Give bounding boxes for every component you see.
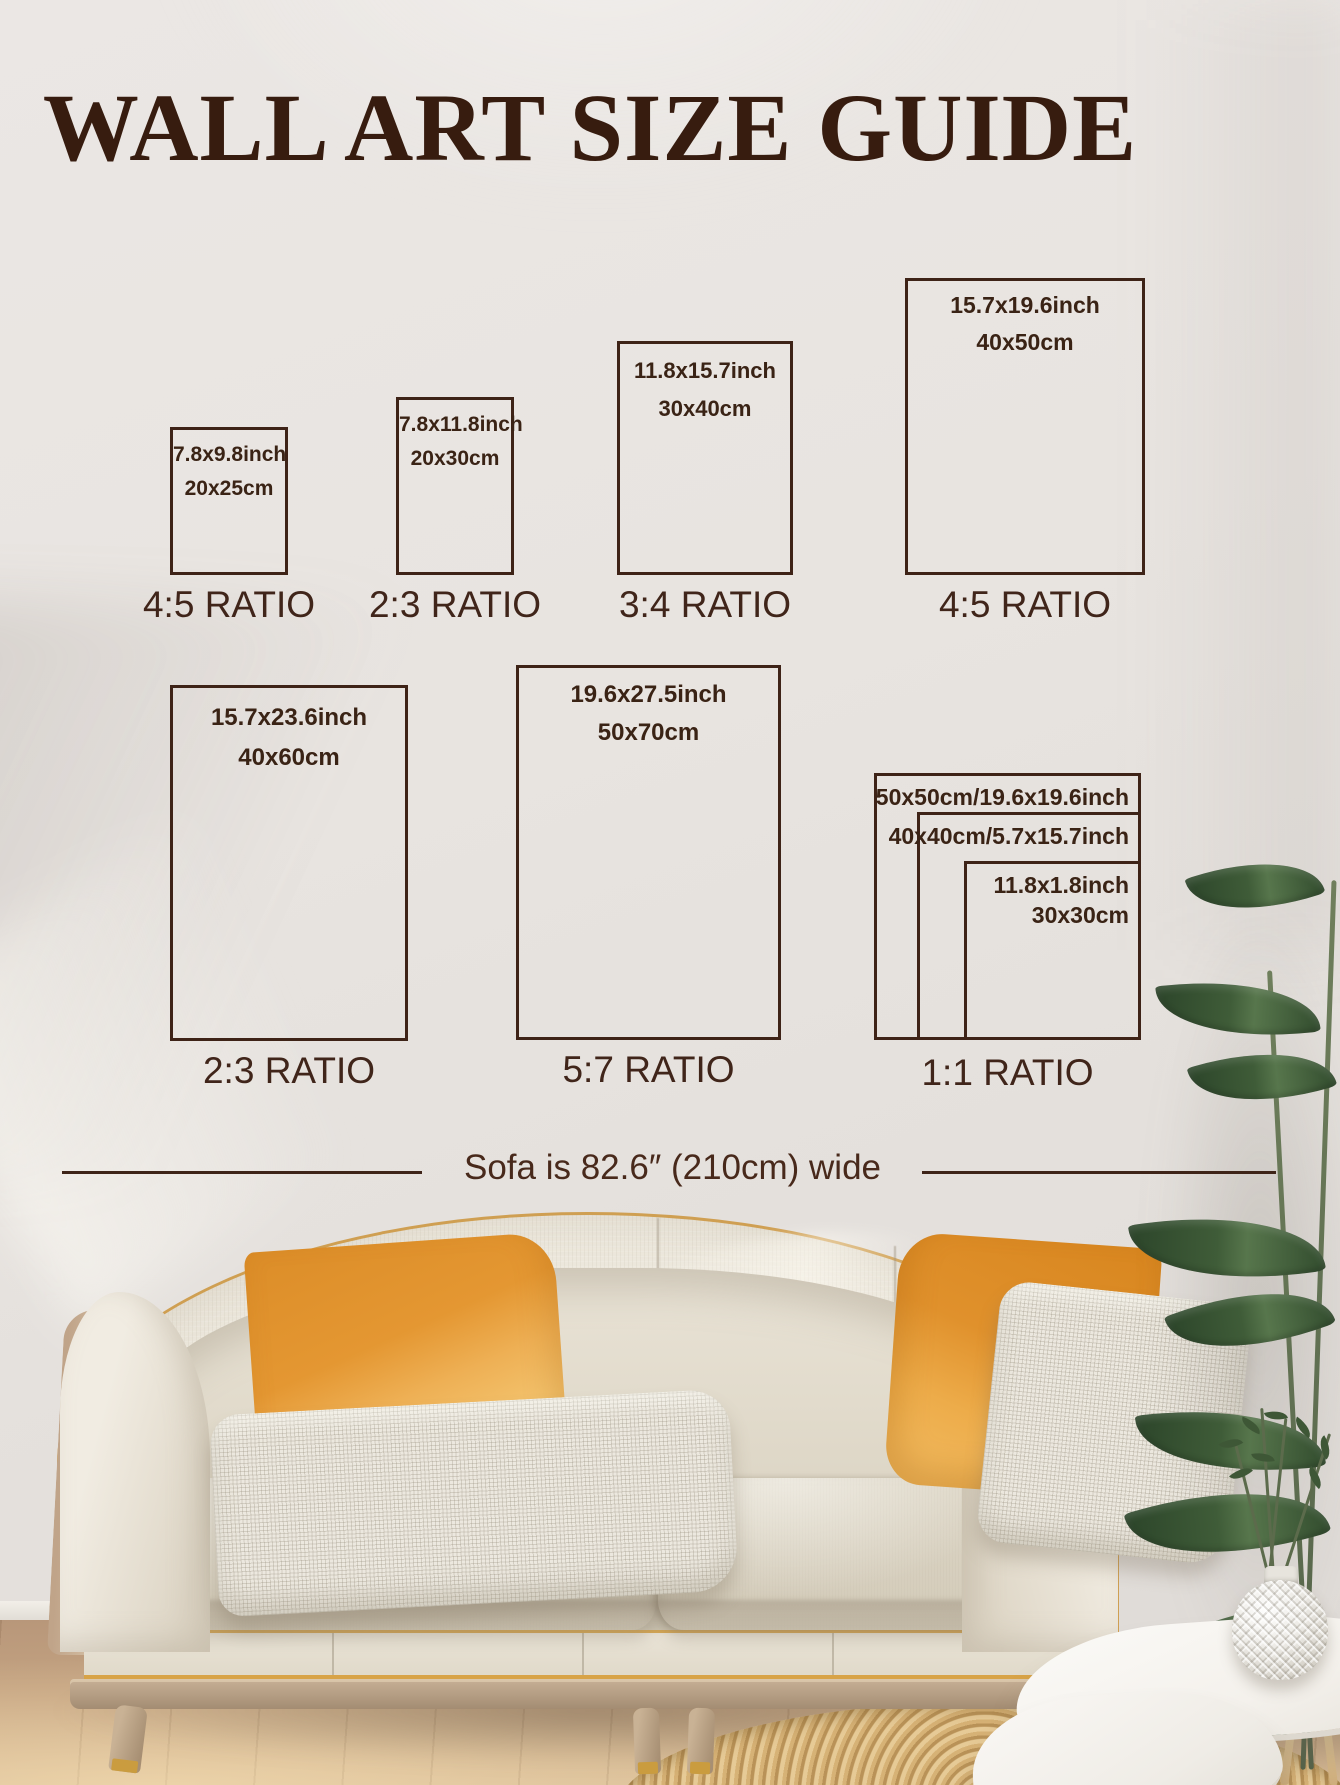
sofa-leg bbox=[687, 1708, 715, 1775]
size-cm: 30x40cm bbox=[620, 390, 790, 428]
frame-50x70-5x7: 19.6x27.5inch 50x70cm 5:7 RATIO bbox=[516, 665, 781, 1040]
frame-40x50-4x5: 15.7x19.6inch 40x50cm 4:5 RATIO bbox=[905, 278, 1145, 575]
size-inch: 19.6x27.5inch bbox=[519, 676, 778, 714]
frame-size-label: 15.7x23.6inch 40x60cm bbox=[173, 688, 405, 778]
ratio-label: 4:5 RATIO bbox=[939, 584, 1111, 626]
ratio-label: 5:7 RATIO bbox=[562, 1049, 734, 1091]
size-inch: 15.7x23.6inch bbox=[173, 698, 405, 738]
size-cm: 50x70cm bbox=[519, 714, 778, 752]
frame-size-label: 50x50cm/19.6x19.6inch bbox=[876, 782, 1129, 812]
page-title: WALL ART SIZE GUIDE bbox=[0, 72, 1180, 183]
frame-size-label: 11.8x1.8inch 30x30cm bbox=[993, 870, 1129, 930]
sprig-leaf bbox=[1291, 1417, 1315, 1439]
size-cm: 40x60cm bbox=[173, 738, 405, 778]
size-cm: 30x30cm bbox=[993, 900, 1129, 930]
frame-group-1x1: 50x50cm/19.6x19.6inch 40x40cm/5.7x15.7in… bbox=[874, 773, 1141, 1040]
frame-30x40-3x4: 11.8x15.7inch 30x40cm 3:4 RATIO bbox=[617, 341, 793, 575]
size-cm: 20x30cm bbox=[399, 442, 511, 476]
ratio-label: 2:3 RATIO bbox=[203, 1050, 375, 1092]
sprig-leaf bbox=[1303, 1466, 1326, 1489]
frame-20x30-2x3: 7.8x11.8inch 20x30cm 2:3 RATIO bbox=[396, 397, 514, 575]
vase-greenery bbox=[1210, 1408, 1340, 1578]
frame-size-label: 7.8x9.8inch 20x25cm bbox=[173, 430, 285, 506]
white-pillow-left bbox=[209, 1389, 739, 1618]
frame-20x25-4x5: 7.8x9.8inch 20x25cm 4:5 RATIO bbox=[170, 427, 288, 575]
size-inch: 11.8x15.7inch bbox=[620, 352, 790, 390]
ratio-label: 2:3 RATIO bbox=[369, 584, 541, 626]
frame-size-label: 40x40cm/5.7x15.7inch bbox=[889, 821, 1129, 851]
size-inch: 15.7x19.6inch bbox=[908, 287, 1142, 324]
wall-art-size-guide-poster: WALL ART SIZE GUIDE 7.8x9.8inch 20x25cm … bbox=[0, 0, 1340, 1785]
size-inch: 7.8x9.8inch bbox=[173, 438, 285, 472]
size-inch: 11.8x1.8inch bbox=[993, 870, 1129, 900]
size-cm: 20x25cm bbox=[173, 472, 285, 506]
sofa-leg bbox=[633, 1708, 661, 1775]
sofa-width-note: Sofa is 82.6″ (210cm) wide bbox=[430, 1148, 915, 1188]
frame-size-label: 7.8x11.8inch 20x30cm bbox=[399, 400, 511, 476]
frame-size-label: 11.8x15.7inch 30x40cm bbox=[620, 344, 790, 428]
frame-size-label: 15.7x19.6inch 40x50cm bbox=[908, 281, 1142, 361]
divider-line-right bbox=[922, 1171, 1276, 1174]
frame-size-label: 19.6x27.5inch 50x70cm bbox=[519, 668, 778, 752]
size-inch: 7.8x11.8inch bbox=[399, 408, 511, 442]
sprig-leaf bbox=[1219, 1433, 1244, 1454]
frame-30x30-square: 11.8x1.8inch 30x30cm bbox=[964, 861, 1141, 1040]
ratio-label: 1:1 RATIO bbox=[921, 1052, 1093, 1094]
divider-line-left bbox=[62, 1171, 422, 1174]
sofa-base-panel bbox=[84, 1630, 1094, 1678]
sofa-wood-rail bbox=[70, 1679, 1108, 1709]
frame-40x60-2x3: 15.7x23.6inch 40x60cm 2:3 RATIO bbox=[170, 685, 408, 1041]
crystal-vase bbox=[1232, 1580, 1328, 1680]
ratio-label: 3:4 RATIO bbox=[619, 584, 791, 626]
size-cm: 40x50cm bbox=[908, 324, 1142, 361]
ratio-label: 4:5 RATIO bbox=[143, 584, 315, 626]
sprig-leaf bbox=[1315, 1435, 1336, 1460]
sprig-leaf bbox=[1239, 1417, 1263, 1435]
